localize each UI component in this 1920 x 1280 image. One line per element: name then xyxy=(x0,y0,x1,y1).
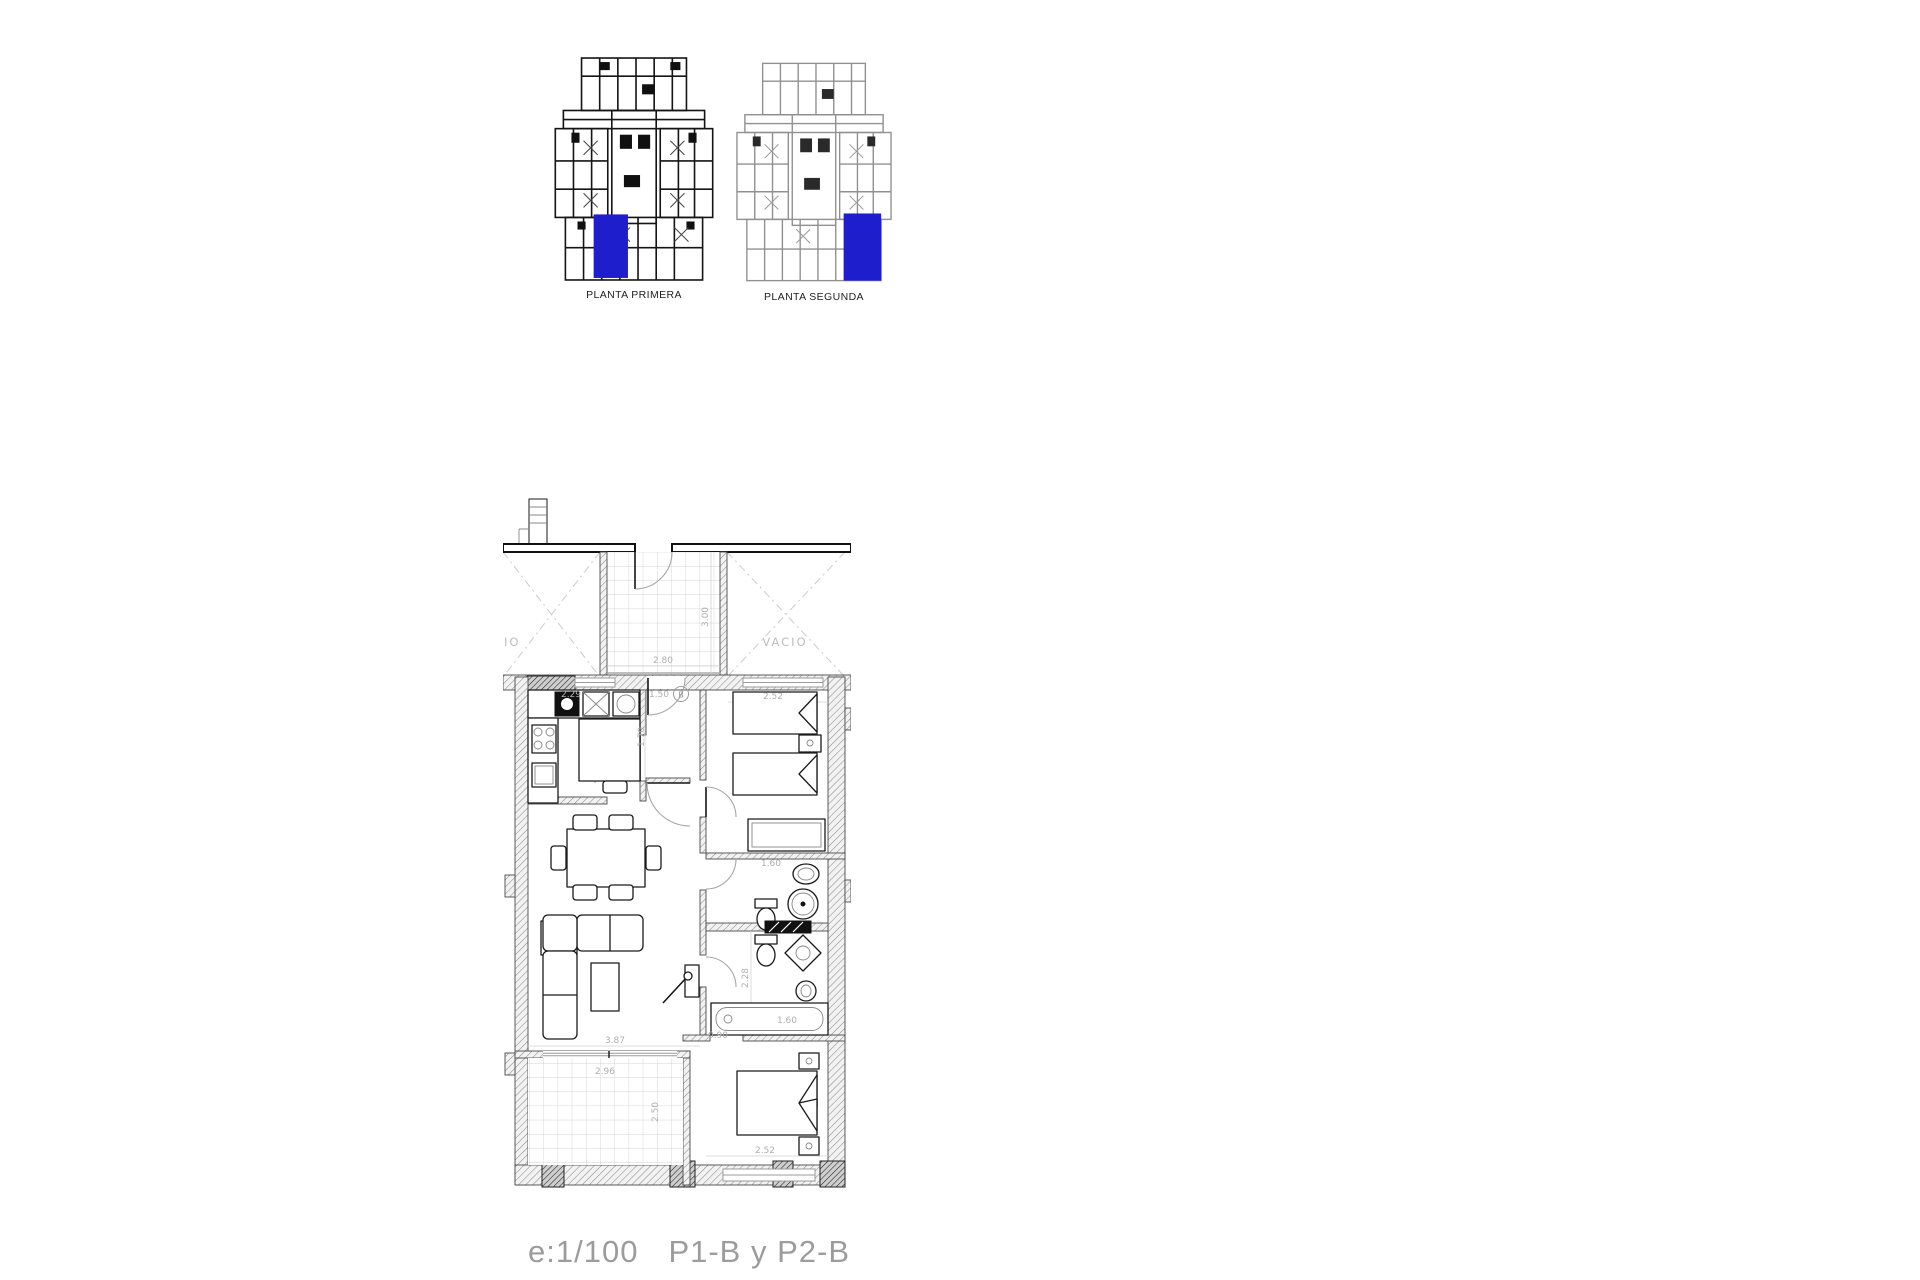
bedroom-2: 2.52 xyxy=(723,1053,819,1181)
stair-fragment xyxy=(519,499,547,545)
bathroom-1: 1.60 xyxy=(755,859,819,933)
caption-scale: e:1/100 xyxy=(528,1234,638,1269)
dim-bathtub-width: 1.60 xyxy=(777,1016,797,1026)
void-right-label: VACIO xyxy=(762,635,807,649)
sheet-caption: e:1/100P1-B y P2-B xyxy=(528,1234,850,1270)
dim-terrace-top-width: 2.80 xyxy=(653,656,673,666)
dim-terrace-bottom-depth: 2.50 xyxy=(651,1102,661,1122)
keyplan1-label: PLANTA PRIMERA xyxy=(545,289,723,301)
entry-badge: B xyxy=(678,691,684,700)
dim-bath1-basin: 1.60 xyxy=(761,859,781,869)
dim-terrace-bottom-width: 2.96 xyxy=(595,1067,615,1077)
dim-kitchen-width: 2.29 xyxy=(561,690,581,700)
keyplan2-label: PLANTA SEGUNDA xyxy=(729,291,899,303)
upper-terrace: 2.80 3.00 xyxy=(600,552,727,675)
apartment-floorplan: IO VACIO 2.80 3.00 xyxy=(503,495,851,1190)
dim-entry-depth: 1.70 xyxy=(637,727,647,747)
top-wall xyxy=(503,544,851,552)
keyplan-planta-segunda xyxy=(735,58,893,286)
keyplan-planta-primera xyxy=(553,56,715,282)
dim-bedroom2-width: 2.52 xyxy=(755,1146,775,1156)
plan-sheet: PLANTA PRIMERA xyxy=(0,0,1920,1280)
keyplan1-walls xyxy=(555,58,712,280)
lower-terrace: 2.96 2.50 xyxy=(528,1058,683,1165)
kitchen: 2.29 1.70 xyxy=(528,690,647,803)
dim-terrace-top-depth: 3.00 xyxy=(701,607,711,627)
dim-hall-width: 0.90 xyxy=(708,1031,728,1041)
dim-entry-width: 1.50 xyxy=(649,690,669,700)
dim-bath2-depth: 2.28 xyxy=(741,968,751,988)
caption-sheets: P1-B y P2-B xyxy=(668,1234,850,1269)
bedroom-1: 2.52 xyxy=(733,692,825,851)
dim-bedroom1-width: 2.52 xyxy=(763,692,783,702)
selected-unit-planta-segunda[interactable] xyxy=(844,213,882,280)
selected-unit-planta-primera[interactable] xyxy=(594,214,628,278)
bathroom-2: 1.60 2.28 xyxy=(711,935,828,1035)
void-left-label: IO xyxy=(504,635,520,649)
living-dining: 3.87 xyxy=(541,815,699,1046)
dim-living-width: 3.87 xyxy=(605,1036,625,1046)
hallway: 0.90 xyxy=(708,1031,728,1041)
